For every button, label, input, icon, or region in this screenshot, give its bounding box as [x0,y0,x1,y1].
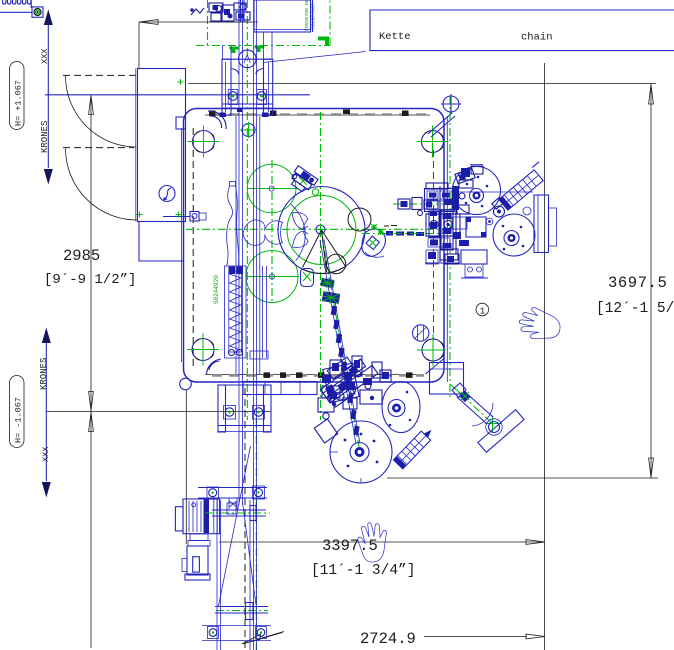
svg-text:KRONES: KRONES [40,121,50,153]
svg-text:[12´-1 5/8”]: [12´-1 5/8”] [596,301,674,317]
svg-text:Kette: Kette [379,31,411,43]
svg-text:3697.5: 3697.5 [608,274,667,292]
svg-text:XXX: XXX [40,49,50,64]
svg-text:COUNT/HGT 0%: COUNT/HGT 0% [311,0,317,29]
svg-text:1: 1 [480,305,486,316]
svg-text:[9´-9 1/2”]: [9´-9 1/2”] [44,272,136,288]
svg-text:H= +1.067: H= +1.067 [14,80,24,126]
svg-text:2724.9: 2724.9 [360,630,416,648]
svg-text:50244920: 50244920 [213,275,220,304]
svg-text:CONVEYOR HGT 94: CONVEYOR HGT 94 [304,0,310,31]
svg-text:KRONES: KRONES [39,358,49,390]
svg-text:2985: 2985 [63,247,100,265]
svg-text:[11´-1 3/4”]: [11´-1 3/4”] [311,563,415,579]
svg-text:chain: chain [521,32,553,44]
svg-text:H= -1.067: H= -1.067 [14,397,24,443]
svg-text:3397.5: 3397.5 [322,537,378,555]
svg-text:XXX: XXX [41,447,51,462]
